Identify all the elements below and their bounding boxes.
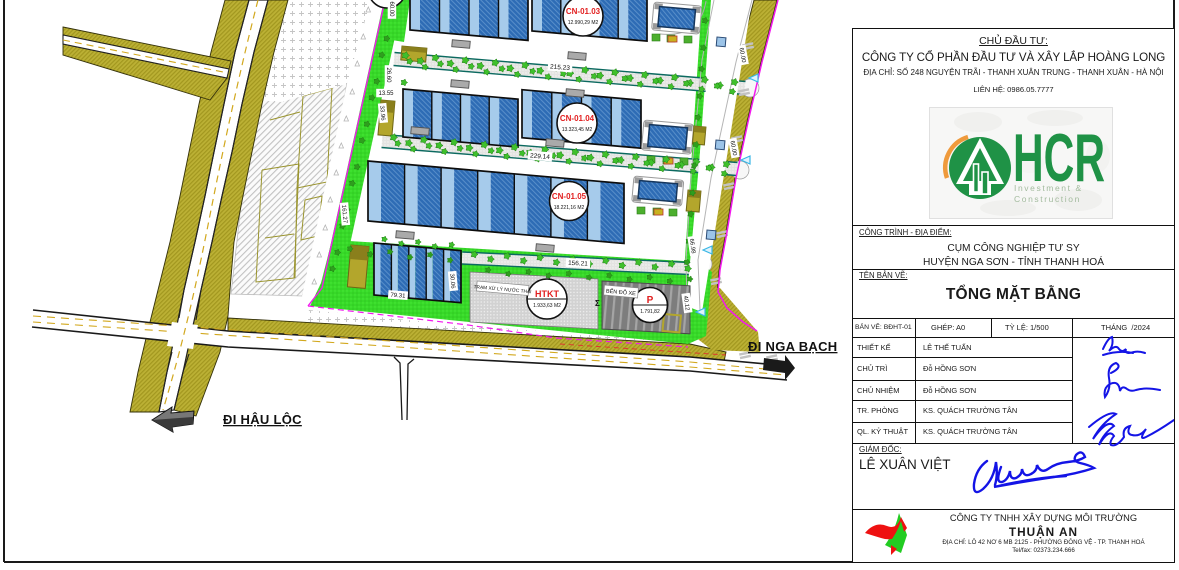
svg-text:79.31: 79.31 (390, 293, 406, 300)
svg-text:18.221,16 M2: 18.221,16 M2 (554, 205, 585, 211)
svg-text:12.990,29 M2: 12.990,29 M2 (568, 20, 599, 26)
svg-text:26.60: 26.60 (385, 67, 391, 83)
svg-text:Σ: Σ (595, 299, 600, 308)
svg-text:ĐI NGA BẠCH: ĐI NGA BẠCH (748, 339, 837, 354)
svg-text:CN-01.04: CN-01.04 (560, 114, 595, 123)
svg-text:13.323,45 M2: 13.323,45 M2 (562, 127, 593, 133)
svg-text:HTKT: HTKT (535, 289, 559, 299)
svg-text:156.21: 156.21 (568, 260, 589, 268)
svg-text:ĐI HẬU LỘC: ĐI HẬU LỘC (223, 412, 302, 427)
svg-text:1.791,82: 1.791,82 (640, 309, 660, 315)
svg-text:P: P (647, 295, 654, 306)
svg-text:CN-01.05: CN-01.05 (552, 192, 587, 201)
svg-text:1.933,63 M2: 1.933,63 M2 (533, 303, 561, 309)
svg-text:13.55: 13.55 (378, 91, 394, 97)
svg-text:60.00: 60.00 (388, 1, 394, 17)
svg-text:CN-01.03: CN-01.03 (566, 7, 601, 16)
